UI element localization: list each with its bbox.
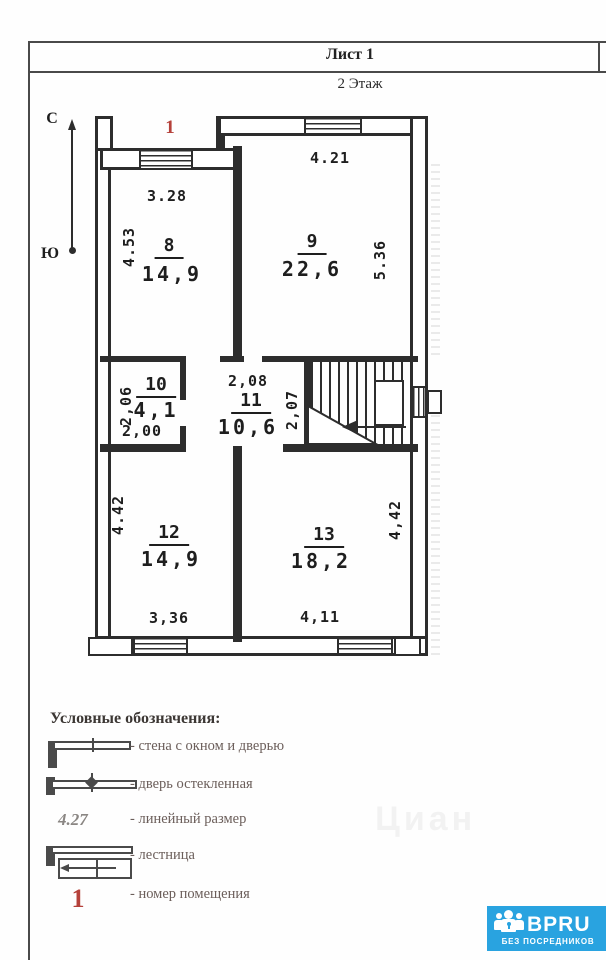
room10-bottom-wall <box>100 444 186 452</box>
room9-dim-right: 5.36 <box>371 240 389 280</box>
porch-step-left <box>88 637 133 656</box>
room11-dim-right: 2,07 <box>283 390 301 430</box>
sheet-title: Лист 1 <box>90 46 606 64</box>
window-room12 <box>133 636 188 656</box>
room12-number: 12 <box>149 522 189 546</box>
room12-area: 14,9 <box>141 547 201 571</box>
header-box-bottom-border <box>28 71 606 73</box>
compass-arrowhead-icon <box>68 119 76 130</box>
legend-label-room-number: - номер помещения <box>130 886 250 903</box>
exterior-wall-left <box>95 148 111 654</box>
faint-scan-text-strip <box>431 160 440 355</box>
room8-dim-left: 4.53 <box>120 227 138 267</box>
legend-label-linear-dimension: - линейный размер <box>130 811 246 828</box>
room12-dim-bottom: 3,36 <box>149 609 189 627</box>
window-terrace <box>139 148 193 170</box>
wall-between-room12-room13 <box>233 446 242 642</box>
room-number-sample: 1 <box>72 884 85 914</box>
bpru-brand-text: BPRU <box>527 913 591 937</box>
room9-number: 9 <box>298 231 327 255</box>
compass-south-dot <box>69 247 76 254</box>
room10-number: 10 <box>136 374 176 398</box>
terrace-room-number: 1 <box>165 117 175 139</box>
room11-number: 11 <box>231 390 271 414</box>
room13-number: 13 <box>304 524 344 548</box>
room13-dim-right: 4,42 <box>386 500 404 540</box>
sheet-top-border <box>28 41 606 43</box>
room11-dim-top: 2,08 <box>228 372 268 390</box>
sheet-left-border <box>28 41 30 960</box>
legend-label-glazed-door: - дверь остекленная <box>130 776 253 793</box>
compass-south-label: Ю <box>41 245 59 263</box>
bpru-logo-badge: BPRU БЕЗ ПОСРЕДНИКОВ <box>487 906 606 951</box>
hall-top-wall-left <box>220 356 244 362</box>
room12-dim-left: 4.42 <box>109 495 127 535</box>
wall-between-room8-room9 <box>233 146 242 362</box>
room8-area: 14,9 <box>142 262 202 286</box>
faint-scan-text-strip <box>431 400 440 655</box>
room10-right-wall-upper <box>180 356 186 400</box>
faint-site-watermark: Циан <box>375 800 476 839</box>
room8-dim-top: 3.28 <box>147 187 187 205</box>
room10-dim-bottom: 2,00 <box>122 422 162 440</box>
window-room13 <box>337 636 393 656</box>
window-room9 <box>304 116 362 136</box>
room11-area: 10,6 <box>218 415 278 439</box>
stairs-direction-graphic <box>304 360 430 450</box>
room13-dim-bottom: 4,11 <box>300 608 340 626</box>
legend-label-wall: - стена с окном и дверью <box>130 738 284 755</box>
room9-area: 22,6 <box>282 257 342 281</box>
corner-step-right <box>394 637 421 656</box>
room9-dim-top: 4.21 <box>310 149 350 167</box>
linear-dimension-sample: 4.27 <box>58 810 88 830</box>
room10-area: 4,1 <box>133 398 178 422</box>
room8-number: 8 <box>155 235 184 259</box>
scanned-floor-plan-sheet: Лист 1 2 Этаж С Ю Циан <box>0 0 606 960</box>
room13-area: 18,2 <box>291 549 351 573</box>
legend-title: Условные обозначения: <box>50 710 221 728</box>
compass-north-label: С <box>46 110 58 128</box>
bpru-tagline-text: БЕЗ ПОСРЕДНИКОВ <box>496 937 600 946</box>
room10-dim-left: 2,06 <box>117 386 135 426</box>
room10-top-wall <box>100 356 186 362</box>
floor-title: 2 Этаж <box>100 76 606 93</box>
compass-arrow-line <box>71 128 73 250</box>
legend-label-stairs: - лестница <box>130 847 195 864</box>
